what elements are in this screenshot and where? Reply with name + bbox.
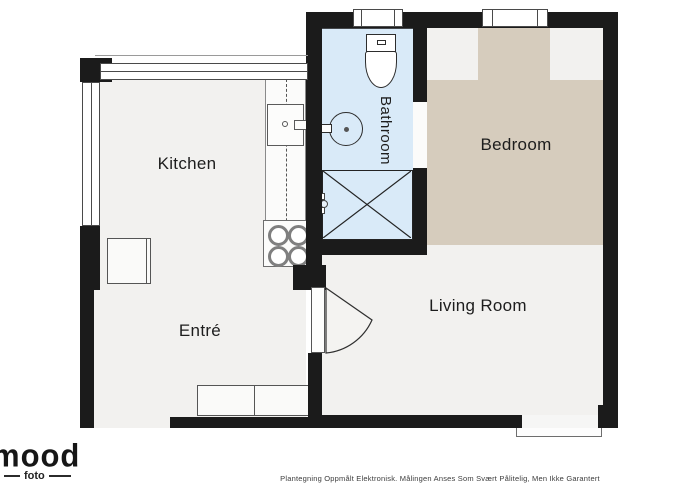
bedroom-label: Bedroom [436,135,596,155]
living-room-door-swing-icon [325,285,375,355]
left-window [82,82,100,226]
burner-icon [268,225,289,246]
balcony-door-threshold [516,427,602,437]
left-wall-lower [80,290,94,428]
bathroom-window [353,9,403,27]
bathroom-sink-drain-icon [344,127,349,132]
kitchen-sink-drain-icon [282,121,288,127]
bottom-wall-living-right [598,405,605,428]
kitchen-bathroom-wall [306,12,322,265]
toilet-icon [365,34,397,88]
bathroom-bottom-wall [306,240,427,255]
right-wall [603,12,618,428]
bedroom-carpet-tongue [478,28,550,80]
bottom-wall-entre [170,417,313,428]
living-room-door-leaf [311,287,325,353]
bathroom-door-opening [413,102,427,168]
kitchen-window-band [100,63,308,80]
floor-plan: Kitchen Entré Bedroom Living Room Bathro… [0,0,700,500]
logo-line-right [49,475,71,477]
stove-icon [263,220,308,267]
shower-icon [322,170,413,240]
bottom-wall-living-left [313,415,522,428]
balcony-door-opening [522,415,598,428]
entre-bench [197,385,310,416]
logo-brand: mood [0,437,80,475]
entre-living-wall-lower [308,353,322,417]
bedroom-carpet [427,80,603,245]
bathroom-label: Bathroom [377,96,394,206]
kitchen-window-outer-line [95,55,308,56]
kitchen-label: Kitchen [117,154,257,174]
logo: mood foto [0,438,80,482]
entre-label: Entré [130,321,270,341]
bathroom-bedroom-wall-lower [413,168,427,245]
burner-icon [268,246,289,267]
left-wall-upper [80,226,100,290]
living-room-label: Living Room [388,296,568,316]
disclaimer-text: Plantegning Oppmålt Elektronisk. Målinge… [180,474,700,483]
entrance-opening [94,415,170,428]
entre-cabinet [107,238,151,284]
bedroom-window [482,9,548,27]
bathroom-bedroom-wall-upper [413,12,427,102]
logo-line-left [4,475,20,477]
